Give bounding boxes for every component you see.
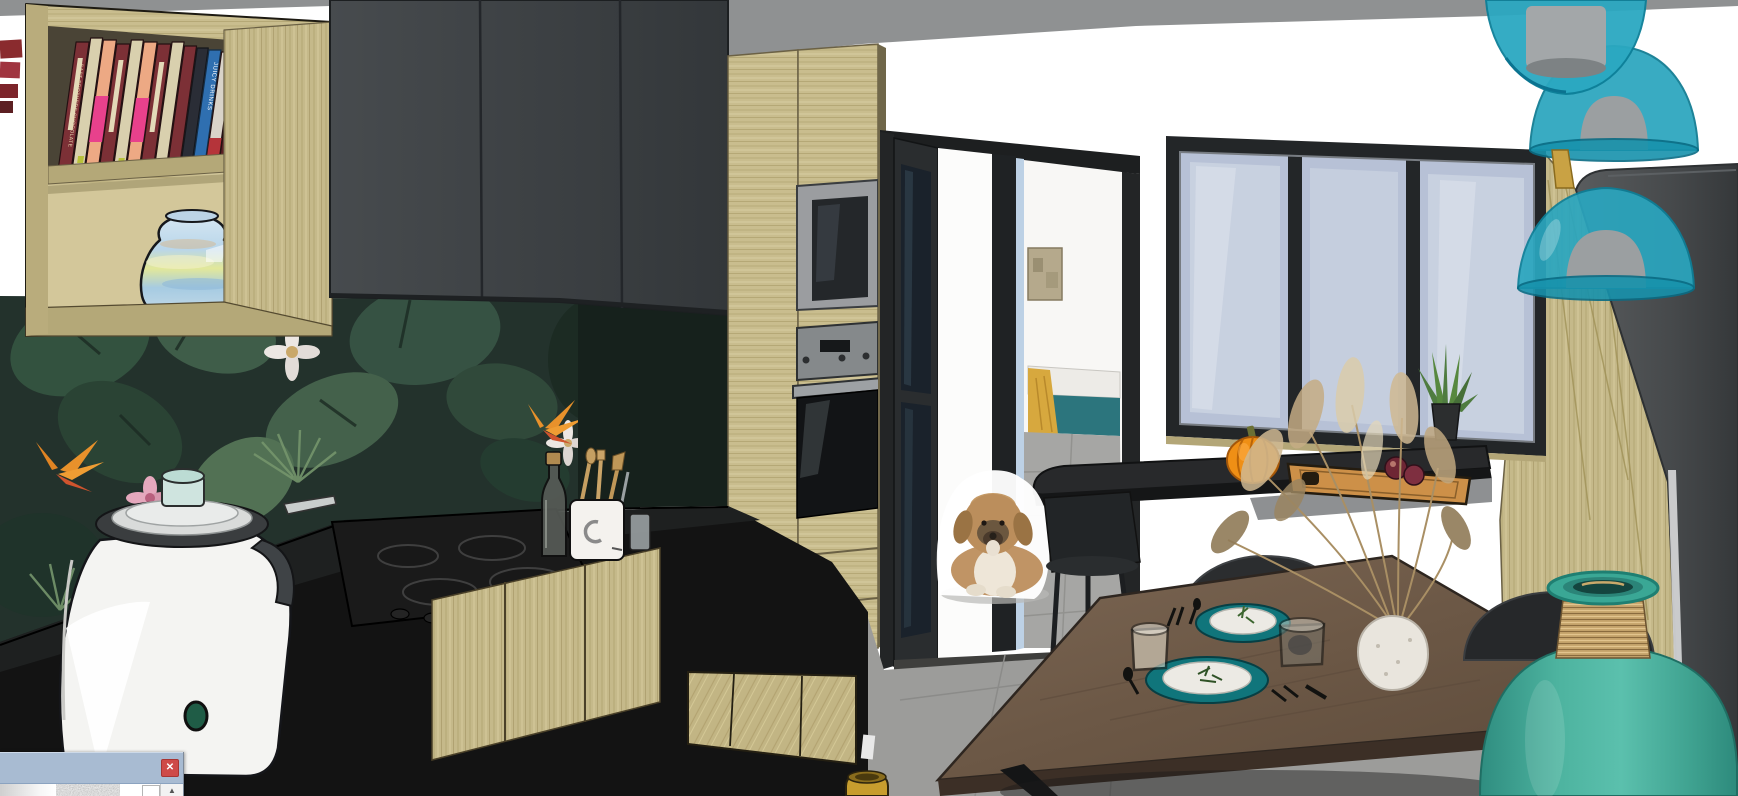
scroll-up-icon: ▲ <box>168 786 176 795</box>
upper-cabinets-dark <box>330 0 728 315</box>
panel-body: ▲ <box>0 784 183 796</box>
golden-cup <box>846 771 888 796</box>
thumbnail-image[interactable] <box>56 784 120 796</box>
oven <box>793 322 882 518</box>
pampas-pot <box>1358 616 1428 690</box>
render-viewport[interactable]: EAST BROTHERS CHOCOLATE JUICY DRINKS <box>0 0 1738 796</box>
panel-titlebar[interactable]: ✕ <box>0 752 183 784</box>
floating-panel: ✕ ▲ <box>0 752 184 796</box>
measuring-cup <box>162 469 204 506</box>
close-button[interactable]: ✕ <box>161 759 179 777</box>
books-row: EAST BROTHERS CHOCOLATE JUICY DRINKS <box>58 38 248 168</box>
bookshelf: EAST BROTHERS CHOCOLATE JUICY DRINKS <box>26 4 332 336</box>
door-leaf <box>894 138 938 666</box>
kitchen-3d-scene: EAST BROTHERS CHOCOLATE JUICY DRINKS <box>0 0 1738 796</box>
panel-spacer <box>120 784 142 796</box>
floor-reflection <box>861 734 875 759</box>
microwave <box>797 180 878 310</box>
water-glass-left <box>1132 623 1168 670</box>
water-glass-right <box>1280 618 1324 666</box>
bedroom-bed <box>1028 366 1120 436</box>
processor-knob <box>185 702 207 730</box>
vase-rope-neck <box>1556 600 1650 658</box>
scrollbar-up[interactable]: ▲ <box>160 784 183 796</box>
small-jar <box>630 514 650 550</box>
place-setting-far <box>1196 604 1290 642</box>
panel-item-box[interactable] <box>142 785 160 796</box>
preview-gradient[interactable] <box>0 784 56 796</box>
